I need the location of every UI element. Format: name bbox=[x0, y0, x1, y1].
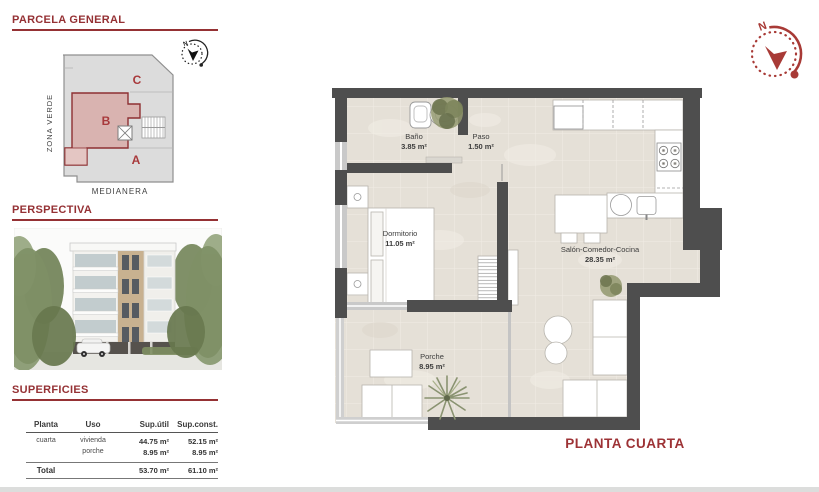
col-header-planta: Planta bbox=[26, 420, 66, 429]
room-label-dormitorio: Dormitorio 11.05 m² bbox=[358, 229, 442, 249]
col-header-sup-util: Sup.útil bbox=[120, 420, 169, 429]
total-sup-util: 53.70 m² bbox=[120, 466, 169, 475]
table-total-row: Total 53.70 m² 61.10 m² bbox=[26, 462, 218, 479]
zone-label-c: C bbox=[133, 73, 142, 87]
superficies-table: Planta Uso Sup.útil Sup.const. cuarta vi… bbox=[26, 420, 218, 479]
cell-sup-const: 8.95 m² bbox=[169, 447, 218, 458]
table-row-vivienda: cuarta vivienda 44.75 m² 52.15 m² bbox=[26, 436, 218, 447]
col-header-uso: Uso bbox=[66, 420, 120, 429]
floor-plan-area: Baño 3.85 m² Paso 1.50 m² Dormitorio 11.… bbox=[320, 80, 819, 492]
plan-caption: PLANTA CUARTA bbox=[550, 436, 700, 451]
room-label-porche: Porche 8.95 m² bbox=[404, 352, 460, 372]
room-label-banio: Baño 3.85 m² bbox=[384, 132, 444, 152]
cell-sup-util: 44.75 m² bbox=[120, 436, 169, 447]
zone-label-a: A bbox=[132, 153, 141, 167]
plan-sheet-page: PARCELA GENERAL C B A ZONA VERDE MEDIANE… bbox=[0, 0, 819, 492]
room-label-salon: Salón-Comedor-Cocina 28.35 m² bbox=[526, 245, 674, 265]
site-compass-n-label: N bbox=[183, 41, 189, 48]
room-label-paso: Paso 1.50 m² bbox=[452, 132, 510, 152]
cell-uso: vivienda bbox=[66, 436, 120, 447]
stairs-symbol bbox=[142, 117, 165, 138]
small-plant-symbol bbox=[600, 275, 622, 297]
north-compass-icon: N bbox=[740, 18, 808, 86]
potted-plant-symbol bbox=[431, 97, 463, 129]
section-title-superficies: SUPERFICIES bbox=[12, 384, 218, 401]
zona-verde-label: ZONA VERDE bbox=[45, 94, 54, 152]
section-title-parcela: PARCELA GENERAL bbox=[12, 14, 218, 31]
cell-sup-const: 52.15 m² bbox=[169, 436, 218, 447]
site-plan-diagram: C B A ZONA VERDE MEDIANERA N bbox=[12, 38, 222, 198]
page-bottom-edge bbox=[0, 487, 819, 492]
table-row-porche: porche 8.95 m² 8.95 m² bbox=[26, 447, 218, 458]
compass-n-label: N bbox=[757, 20, 769, 34]
total-label: Total bbox=[26, 466, 66, 475]
cell-planta bbox=[26, 447, 66, 458]
stove-symbol bbox=[657, 143, 681, 171]
site-compass-icon: N bbox=[182, 40, 208, 67]
cell-planta: cuarta bbox=[26, 436, 66, 447]
cell-uso: porche bbox=[66, 447, 120, 458]
medianera-label: MEDIANERA bbox=[92, 187, 149, 196]
cell-sup-util: 8.95 m² bbox=[120, 447, 169, 458]
elevator-symbol bbox=[118, 126, 132, 140]
total-sup-const: 61.10 m² bbox=[169, 466, 218, 475]
section-title-perspectiva: PERSPECTIVA bbox=[12, 204, 218, 221]
table-header-row: Planta Uso Sup.útil Sup.const. bbox=[26, 420, 218, 433]
zone-label-b: B bbox=[102, 114, 111, 128]
building-render bbox=[14, 228, 222, 370]
col-header-sup-const: Sup.const. bbox=[169, 420, 218, 429]
